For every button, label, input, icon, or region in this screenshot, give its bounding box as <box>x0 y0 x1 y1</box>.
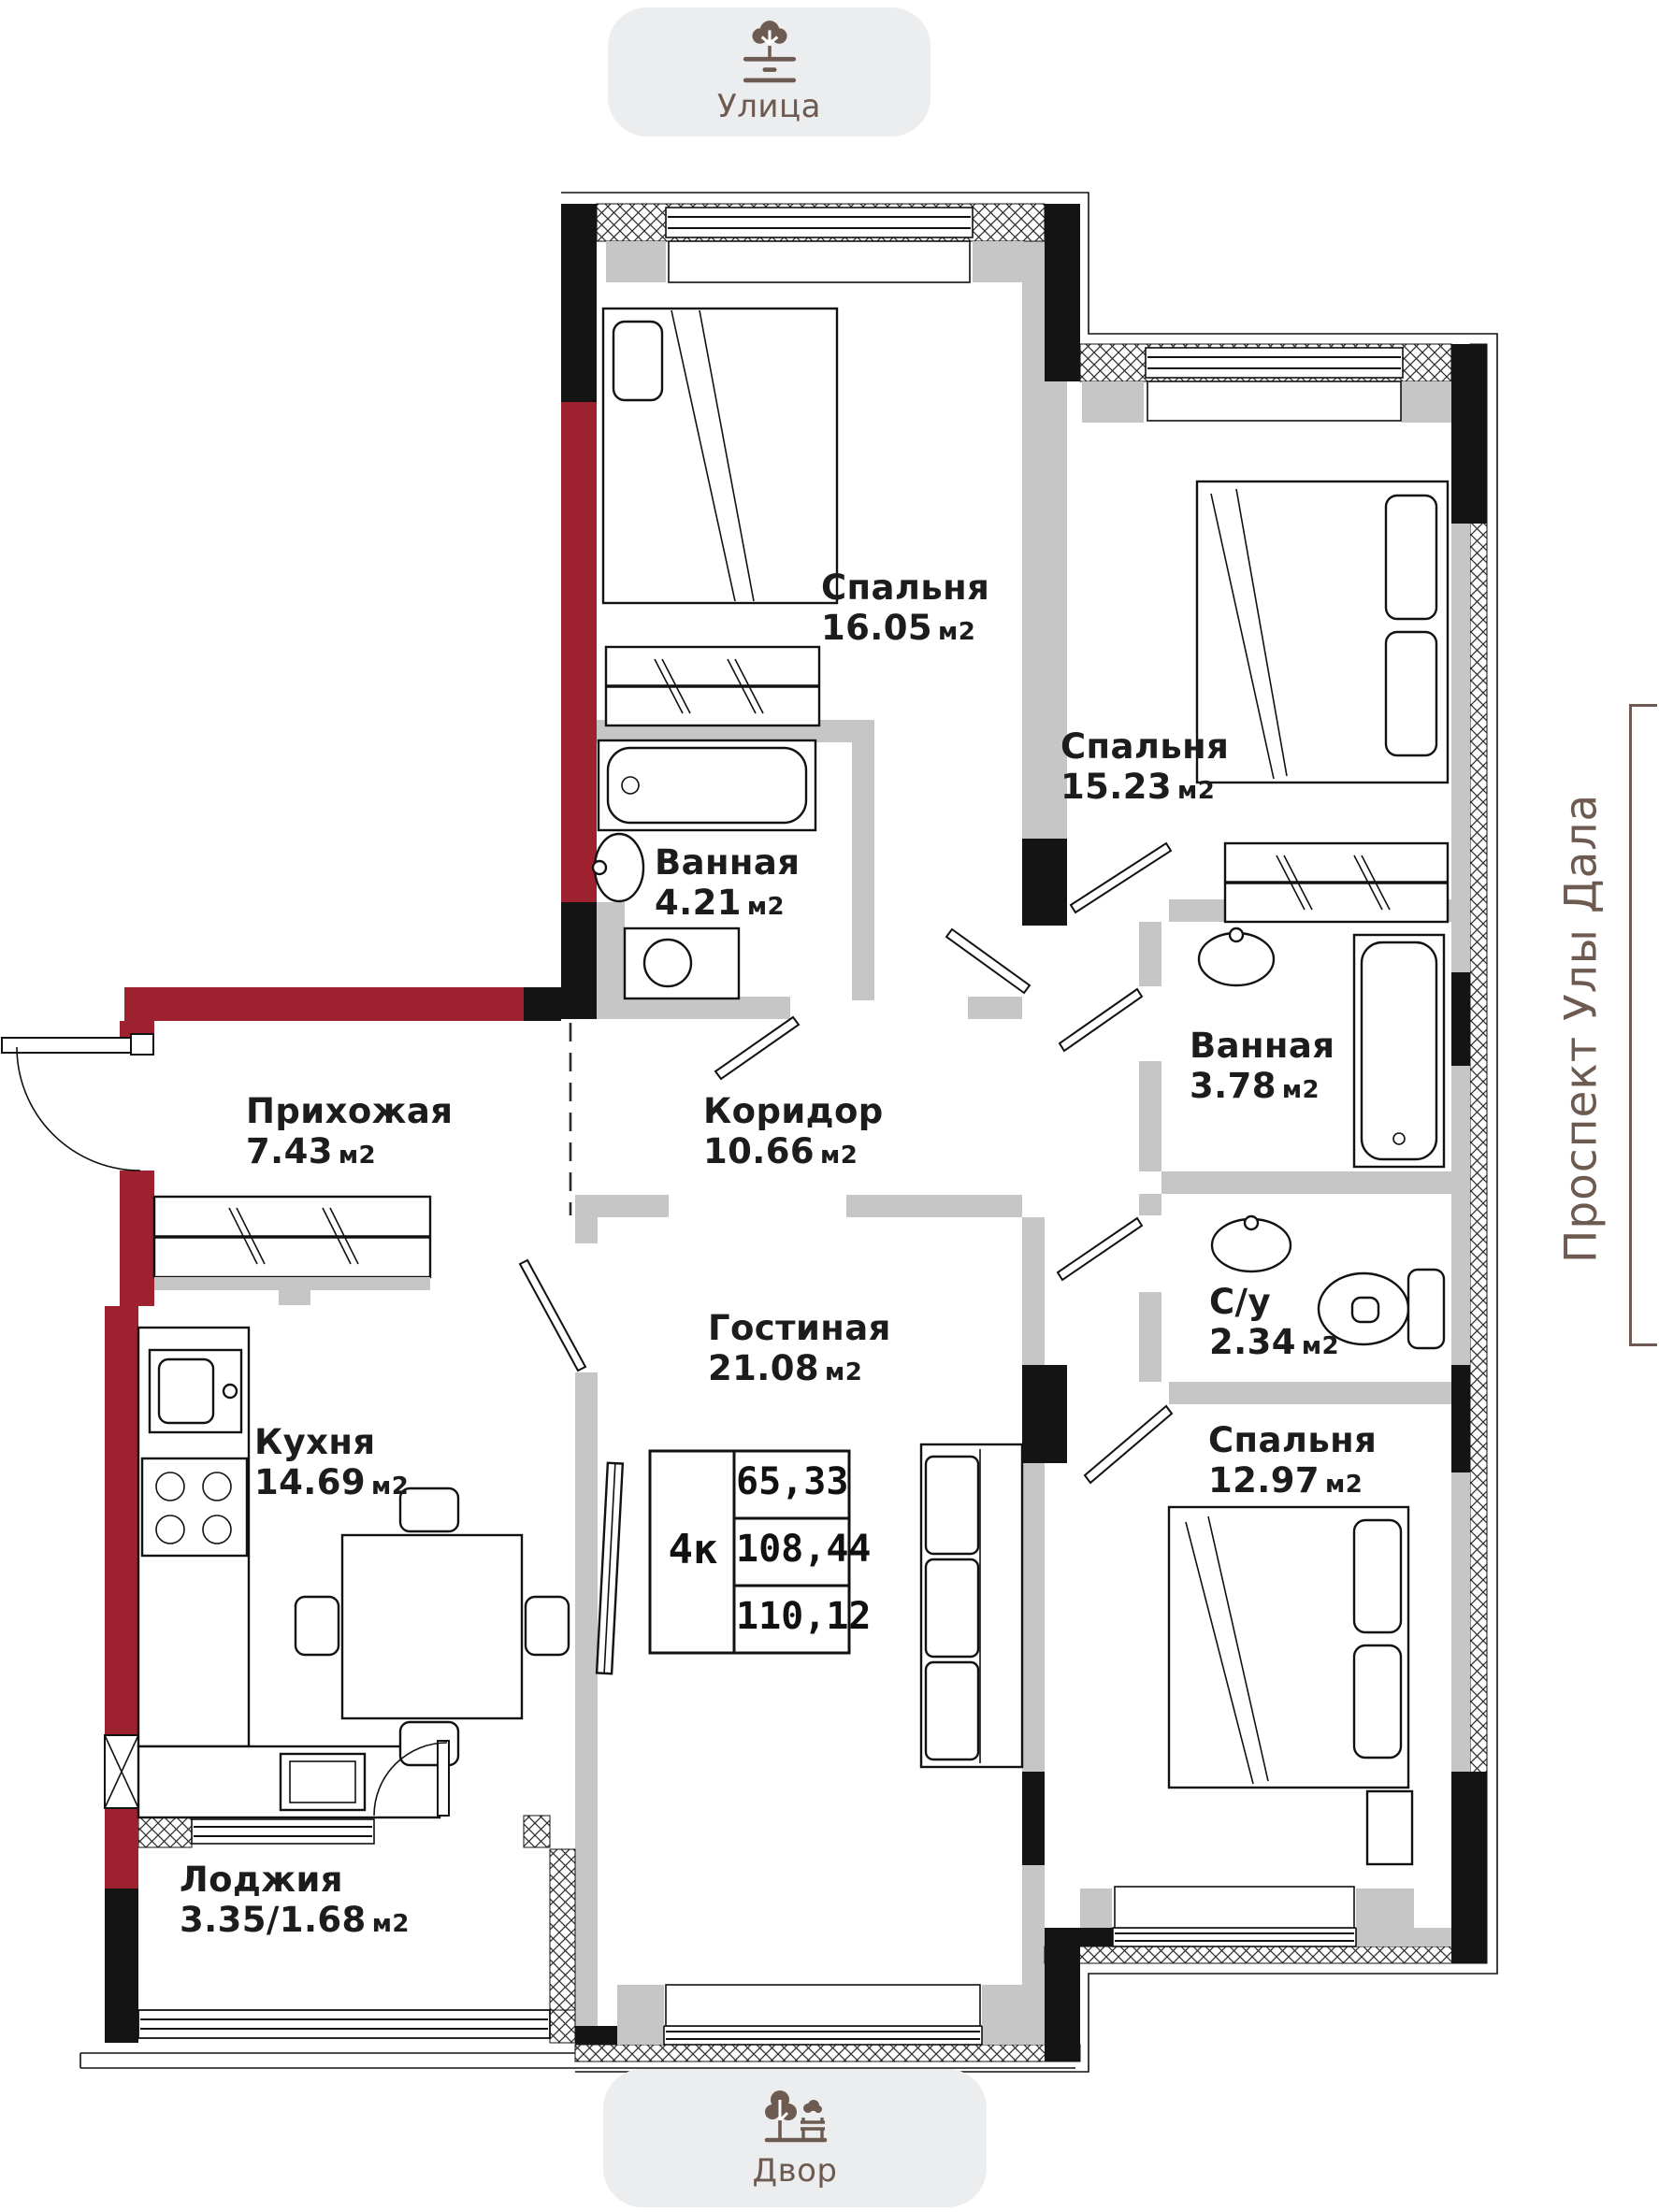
bed <box>1197 481 1448 783</box>
tv <box>597 1463 623 1674</box>
label-hallway: Прихожая 7.43м2 <box>246 1092 453 1172</box>
bed <box>1169 1507 1408 1788</box>
door-bedroom3 <box>1085 1406 1172 1483</box>
park-bench-icon <box>759 2087 830 2148</box>
door-bath1 <box>715 1017 799 1079</box>
door-kitchen-living <box>520 1260 585 1371</box>
hall-wardrobe <box>154 1197 430 1305</box>
label-bedroom3: Спальня 12.97м2 <box>1208 1421 1377 1501</box>
wardrobe <box>1225 843 1448 922</box>
sofa <box>921 1444 1022 1767</box>
yard-badge-label: Двор <box>753 2152 838 2190</box>
label-bedroom2: Спальня 15.23м2 <box>1060 727 1229 808</box>
door-wc <box>1058 1218 1142 1280</box>
label-loggia: Лоджия 3.35/1.68м2 <box>180 1860 410 1941</box>
washing-machine-icon <box>625 928 739 998</box>
sink-icon <box>1212 1216 1291 1271</box>
sink-icon <box>593 834 643 901</box>
info-rooms-count: 4к <box>652 1526 734 1573</box>
dining-table <box>296 1488 569 1765</box>
label-living: Гостиная 21.08м2 <box>708 1309 891 1389</box>
bed <box>603 309 837 603</box>
tree-street-icon <box>739 19 801 84</box>
label-kitchen: Кухня 14.69м2 <box>254 1423 409 1503</box>
info-usable-area: 108,44 <box>736 1528 848 1571</box>
wardrobe <box>606 647 819 725</box>
street-badge-label: Улица <box>717 88 821 125</box>
street-name-vertical: Проспект Улы Дала <box>1549 707 1614 1350</box>
street-divider-tick-bottom <box>1629 1343 1657 1346</box>
info-total-area: 110,12 <box>736 1595 848 1638</box>
street-divider-line <box>1629 707 1632 1346</box>
bathtub-icon <box>1354 935 1444 1167</box>
street-badge: Улица <box>608 7 930 136</box>
entrance-door <box>2 1034 153 1171</box>
label-bedroom1: Спальня 16.05м2 <box>821 568 989 649</box>
vent-shaft <box>105 1735 138 1808</box>
door-bedroom2 <box>1071 843 1171 912</box>
bathtub-icon <box>599 740 815 830</box>
kitchen-sink-icon <box>150 1350 241 1432</box>
nightstand <box>1367 1791 1412 1864</box>
label-corridor: Коридор 10.66м2 <box>703 1092 884 1172</box>
sink-icon <box>1199 928 1274 985</box>
label-wc: С/у 2.34м2 <box>1209 1283 1339 1363</box>
yard-badge: Двор <box>603 2069 987 2207</box>
label-bath2: Ванная 3.78м2 <box>1190 1027 1334 1107</box>
door-bedroom1 <box>946 929 1030 993</box>
info-living-area: 65,33 <box>736 1460 848 1503</box>
door-bath2 <box>1060 989 1142 1051</box>
stove-icon <box>142 1458 247 1556</box>
street-divider-tick-top <box>1629 704 1657 707</box>
label-bath1: Ванная 4.21м2 <box>655 843 800 924</box>
